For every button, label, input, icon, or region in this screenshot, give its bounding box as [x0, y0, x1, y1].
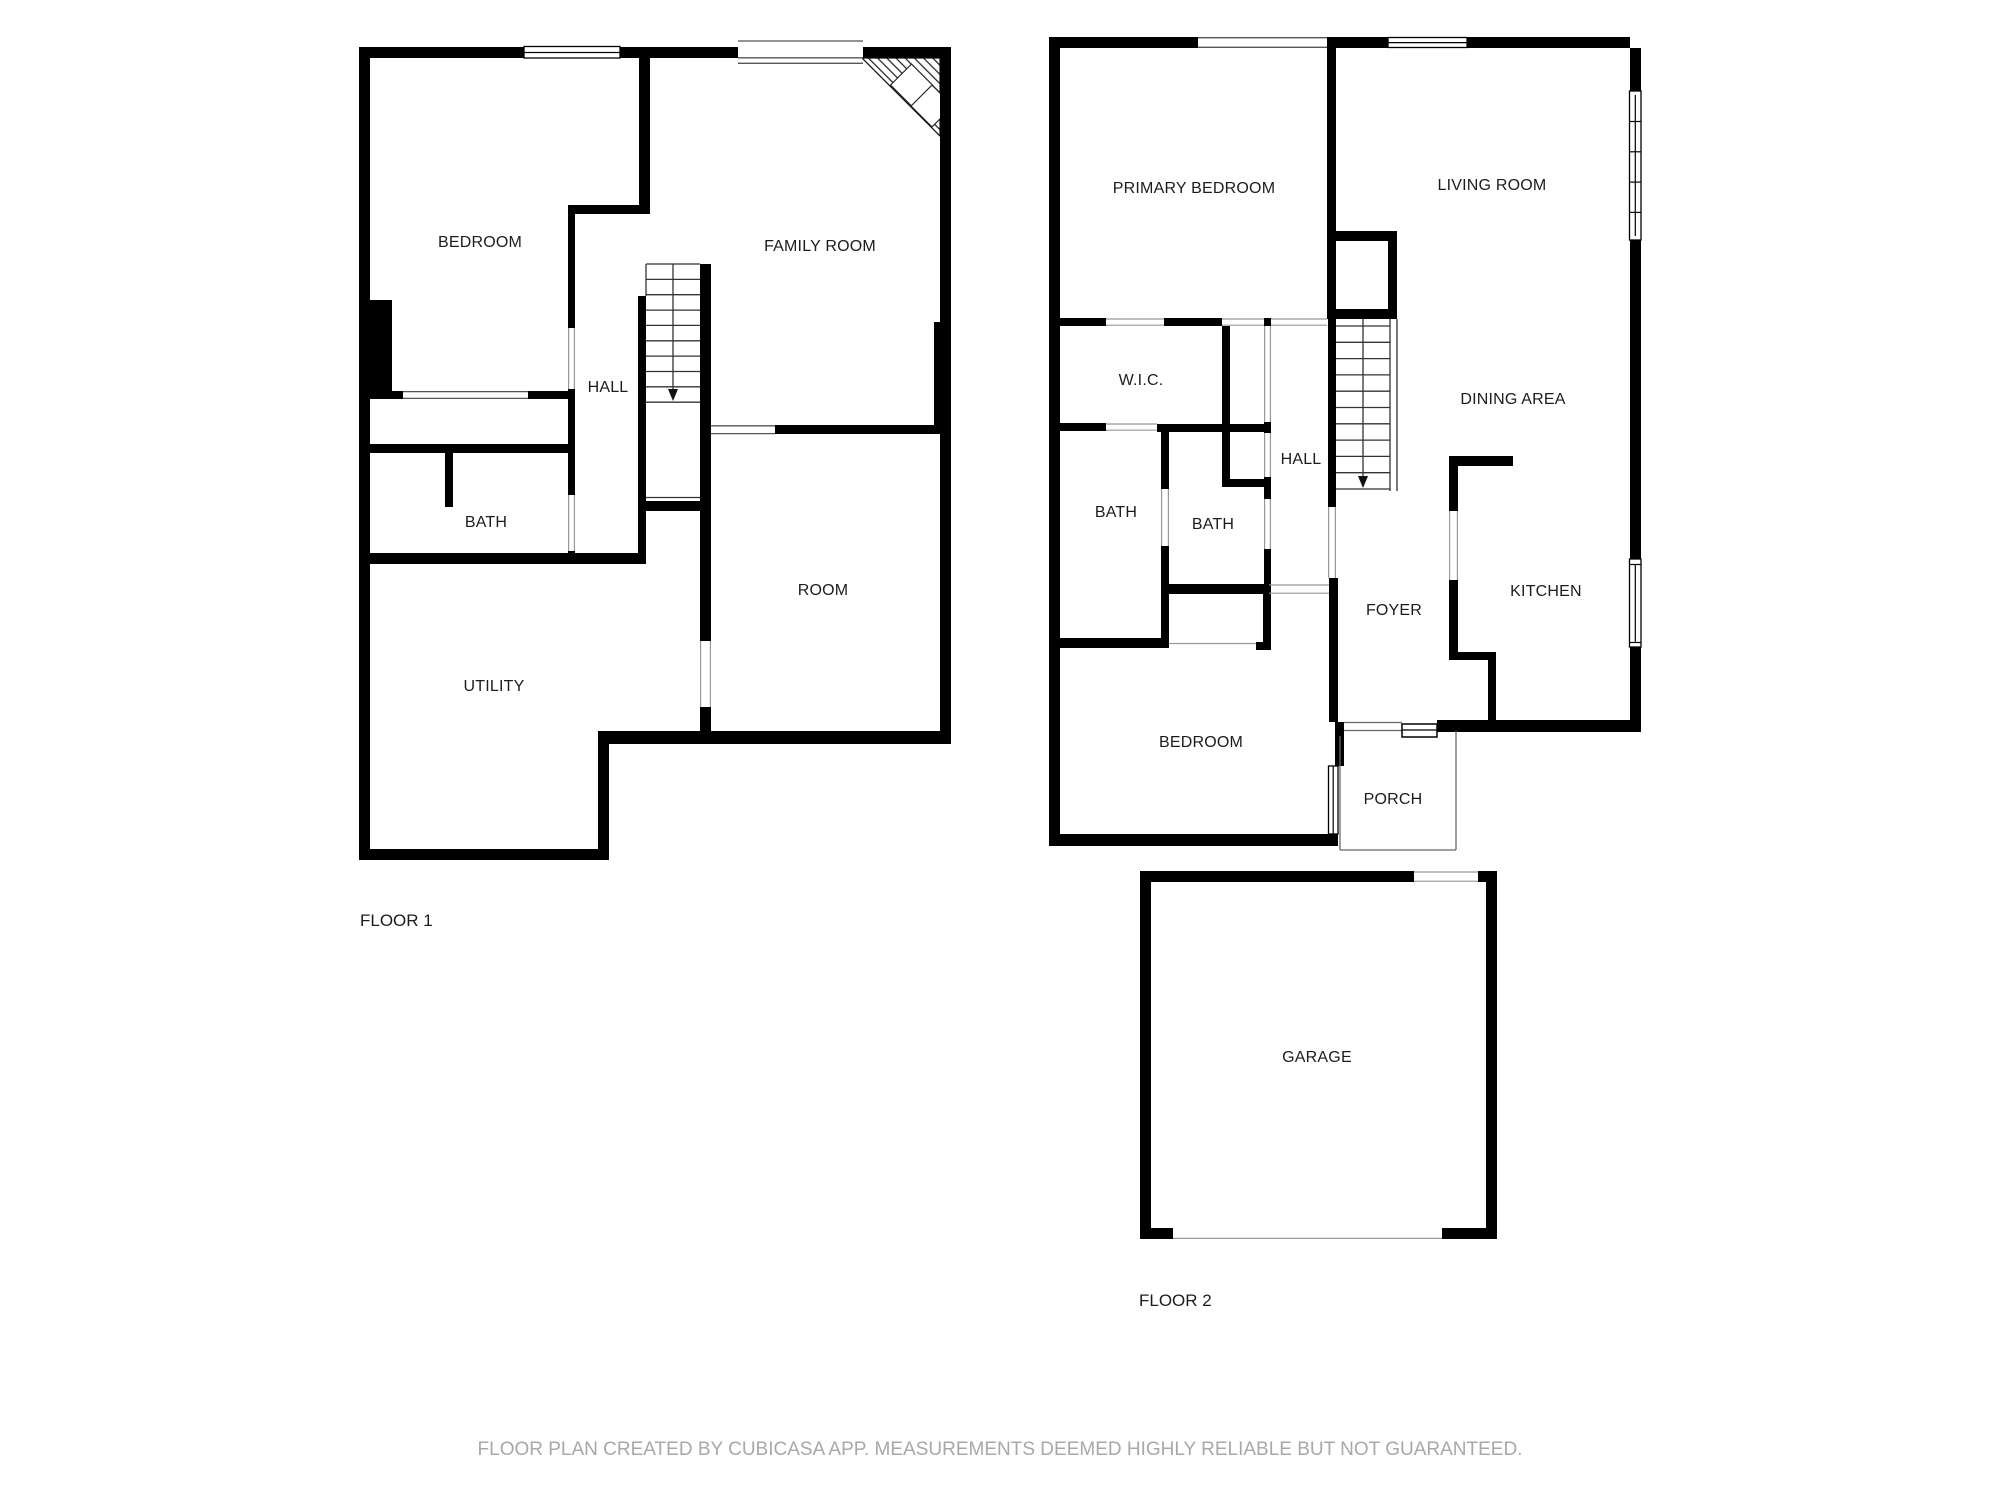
svg-text:FAMILY ROOM: FAMILY ROOM [764, 238, 876, 255]
svg-text:BATH: BATH [1095, 504, 1137, 521]
svg-text:UTILITY: UTILITY [464, 678, 525, 695]
svg-text:PORCH: PORCH [1364, 791, 1423, 808]
svg-text:BATH: BATH [1192, 516, 1234, 533]
svg-text:HALL: HALL [1281, 451, 1322, 468]
svg-text:BEDROOM: BEDROOM [438, 234, 522, 251]
svg-text:FLOOR 1: FLOOR 1 [360, 911, 433, 930]
svg-text:GARAGE: GARAGE [1282, 1049, 1352, 1066]
svg-text:PRIMARY BEDROOM: PRIMARY BEDROOM [1113, 180, 1275, 197]
svg-text:BEDROOM: BEDROOM [1159, 734, 1243, 751]
svg-text:KITCHEN: KITCHEN [1510, 583, 1582, 600]
svg-text:W.I.C.: W.I.C. [1119, 372, 1164, 389]
svg-text:ROOM: ROOM [798, 582, 849, 599]
svg-text:DINING AREA: DINING AREA [1460, 391, 1565, 408]
svg-text:FLOOR 2: FLOOR 2 [1139, 1291, 1212, 1310]
svg-text:BATH: BATH [465, 514, 507, 531]
svg-text:LIVING ROOM: LIVING ROOM [1438, 177, 1547, 194]
svg-text:FOYER: FOYER [1366, 602, 1422, 619]
svg-text:HALL: HALL [588, 379, 629, 396]
svg-text:FLOOR PLAN CREATED BY CUBICASA: FLOOR PLAN CREATED BY CUBICASA APP. MEAS… [478, 1439, 1523, 1460]
